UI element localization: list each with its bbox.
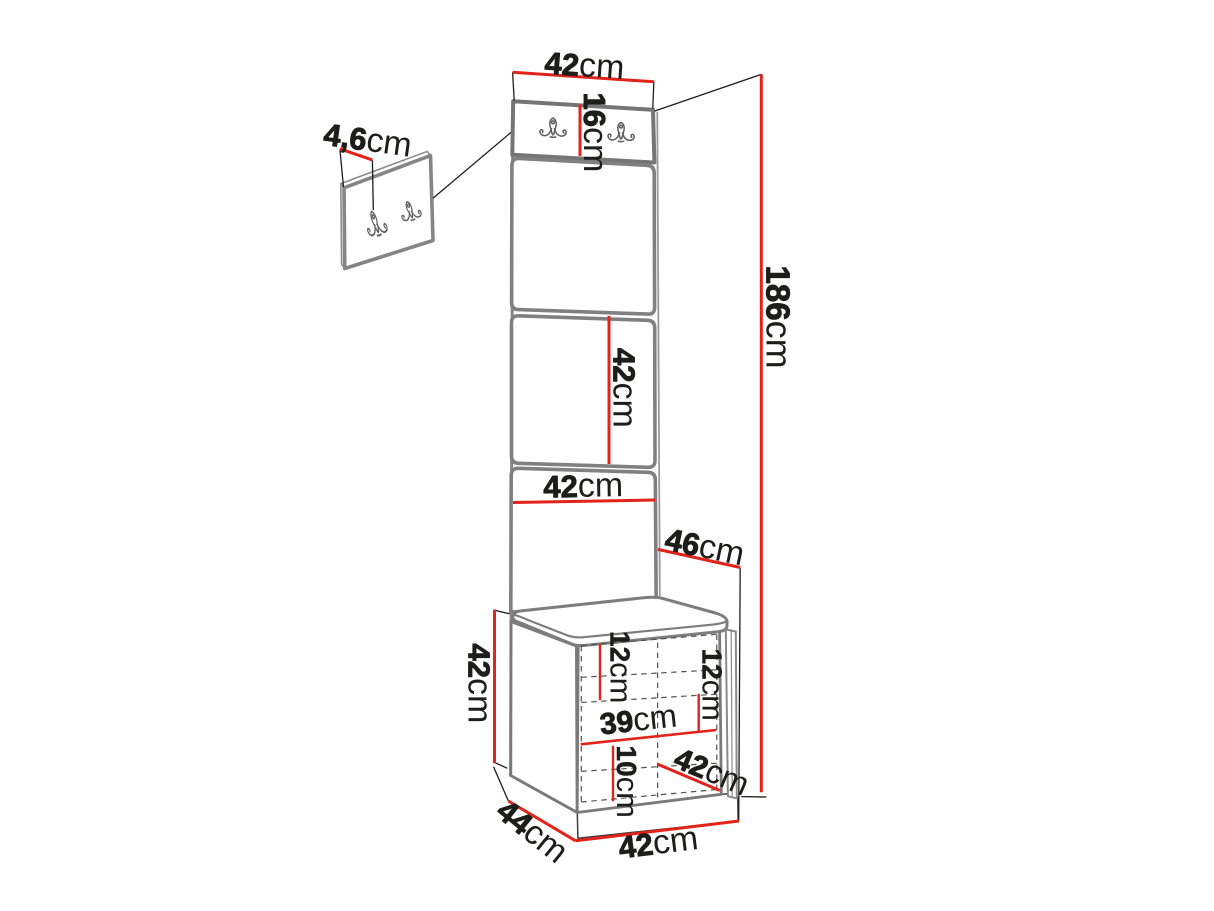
svg-text:186cm: 186cm (759, 266, 800, 369)
svg-text:12cm: 12cm (696, 649, 731, 721)
svg-text:42cm: 42cm (461, 644, 499, 724)
svg-text:42cm: 42cm (606, 348, 644, 428)
svg-text:16cm: 16cm (576, 93, 614, 173)
svg-text:10cm: 10cm (610, 746, 645, 818)
svg-text:42cm: 42cm (543, 466, 623, 505)
svg-text:12cm: 12cm (604, 631, 639, 703)
svg-text:42cm: 42cm (543, 44, 625, 87)
